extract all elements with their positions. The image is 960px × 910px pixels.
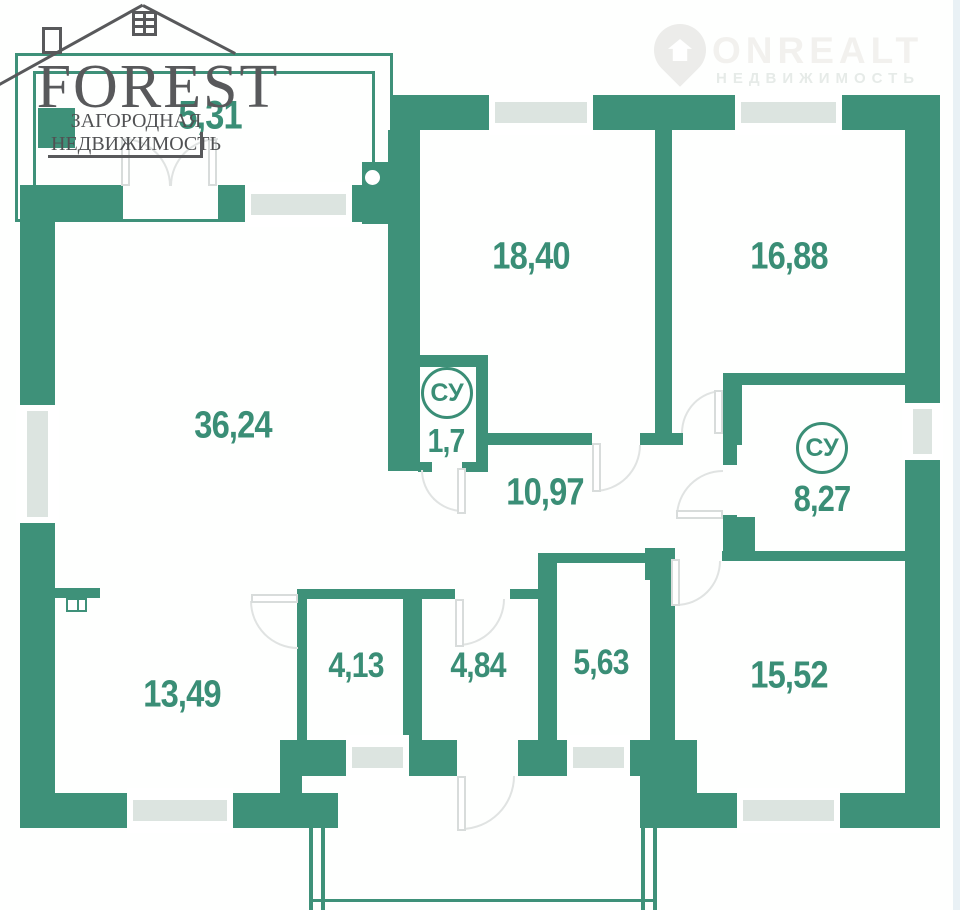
door-leaf (457, 776, 466, 831)
window (902, 403, 943, 460)
wall (297, 589, 307, 740)
window (16, 405, 59, 523)
door-swing-arc (250, 601, 298, 649)
vent-shaft-icon (66, 598, 87, 612)
room-area-label-10-97: 10,97 (506, 472, 583, 515)
wall (297, 589, 455, 599)
wall (655, 130, 672, 433)
window (245, 182, 352, 227)
door-leaf (251, 594, 298, 603)
door-leaf (714, 390, 723, 434)
door-leaf (676, 510, 723, 519)
wall (538, 553, 557, 740)
wall (723, 445, 737, 465)
floor-plan-image: 5,31 18,40 16,88 36,24 СУ 1,7 10,97 СУ 8… (0, 0, 960, 910)
room-area-label-1-7: 1,7 (428, 422, 465, 460)
window (489, 90, 593, 135)
room-area-label-15-52: 15,52 (750, 655, 827, 698)
room-area-label-4-84: 4,84 (450, 646, 505, 686)
terrace-step-line (309, 899, 657, 902)
watermark-pin-icon (643, 13, 717, 87)
room-area-label-8-27: 8,27 (794, 478, 851, 520)
window (737, 788, 840, 833)
logo-chimney-icon (42, 27, 62, 54)
watermark-subtitle: НЕДВИЖИМОСТЬ (716, 70, 920, 87)
door-leaf (592, 443, 601, 492)
window (346, 735, 409, 780)
wall (510, 589, 538, 599)
window (567, 735, 630, 780)
wall (388, 130, 420, 471)
terrace-step-line (641, 828, 645, 910)
room-area-label-13-49: 13,49 (143, 674, 220, 717)
wall (723, 373, 905, 385)
terrace-step-line (321, 828, 325, 910)
room-area-label-36-24: 36,24 (194, 405, 271, 448)
door-swing-arc (458, 599, 505, 646)
wall (640, 433, 683, 445)
wall (905, 130, 940, 828)
wall (390, 95, 940, 130)
wall (476, 433, 592, 445)
terrace-step-line (309, 828, 313, 910)
logo-subtitle: ЗАГОРОДНАЯ НЕДВИЖИМОСТЬ (0, 110, 274, 156)
logo-frame-line (200, 132, 203, 158)
terrace-step-line (653, 828, 657, 910)
wall (280, 740, 302, 794)
wall (640, 740, 697, 794)
logo-window-icon (132, 11, 157, 36)
bathroom-su-badge: СУ (421, 367, 473, 419)
watermark-title: ONREALT (712, 30, 923, 72)
scan-edge-artifact (953, 0, 960, 910)
door-leaf (671, 559, 680, 606)
wall-notch-circle (365, 170, 380, 185)
room-area-label-5-63: 5,63 (573, 643, 628, 683)
room-area-label-18-40: 18,40 (492, 236, 569, 279)
wall (403, 589, 422, 740)
wall (55, 588, 100, 598)
wall (723, 517, 755, 560)
room-area-label-16-88: 16,88 (750, 236, 827, 279)
su-label: СУ (805, 434, 838, 463)
wall (476, 355, 488, 472)
door-leaf (457, 468, 466, 514)
room-area-label-4-13: 4,13 (328, 646, 383, 686)
wall (538, 553, 650, 563)
su-label: СУ (430, 379, 463, 408)
bathroom-su-badge: СУ (796, 422, 848, 474)
door-swing-arc (676, 561, 721, 606)
door-leaf (455, 599, 464, 647)
window (127, 788, 233, 833)
door-swing-arc (594, 445, 641, 492)
door-swing-arc (461, 776, 515, 830)
logo-frame-line (48, 155, 203, 158)
window (735, 90, 842, 135)
